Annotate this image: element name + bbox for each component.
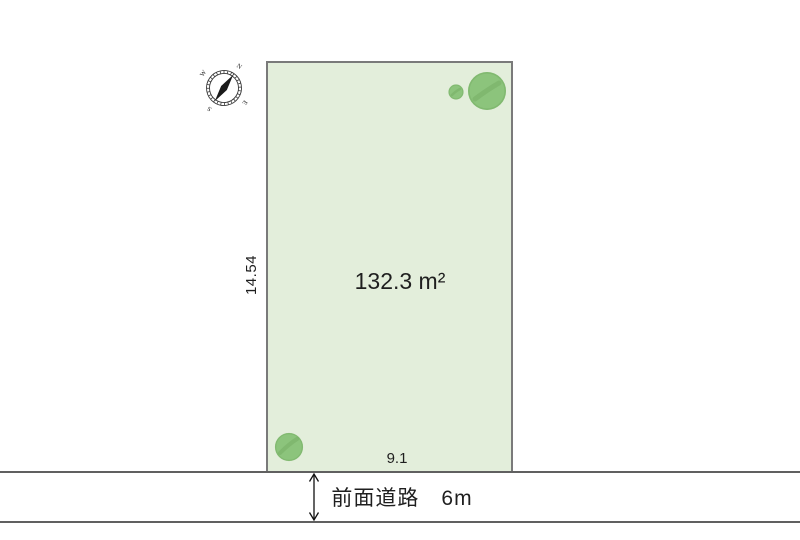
compass-icon: N E S W (184, 47, 264, 127)
land-plot-diagram: N E S W 14.54 132.3 m² 9.1 前面道路 6m (0, 0, 800, 540)
compass-east-label: E (240, 99, 248, 106)
depth-dimension-label: 14.54 (243, 235, 261, 315)
compass-north-label: N (235, 62, 243, 71)
front-road-label: 前面道路 6m (302, 482, 502, 512)
compass-needle (212, 73, 236, 103)
road-edge-line-upper (0, 471, 800, 473)
land-parcel-rect (266, 61, 513, 473)
area-label: 132.3 m² (330, 268, 470, 295)
road-edge-line-lower (0, 521, 800, 523)
compass-south-label: S (206, 104, 213, 112)
compass-west-label: W (199, 68, 209, 78)
frontage-dimension-label: 9.1 (363, 450, 431, 467)
